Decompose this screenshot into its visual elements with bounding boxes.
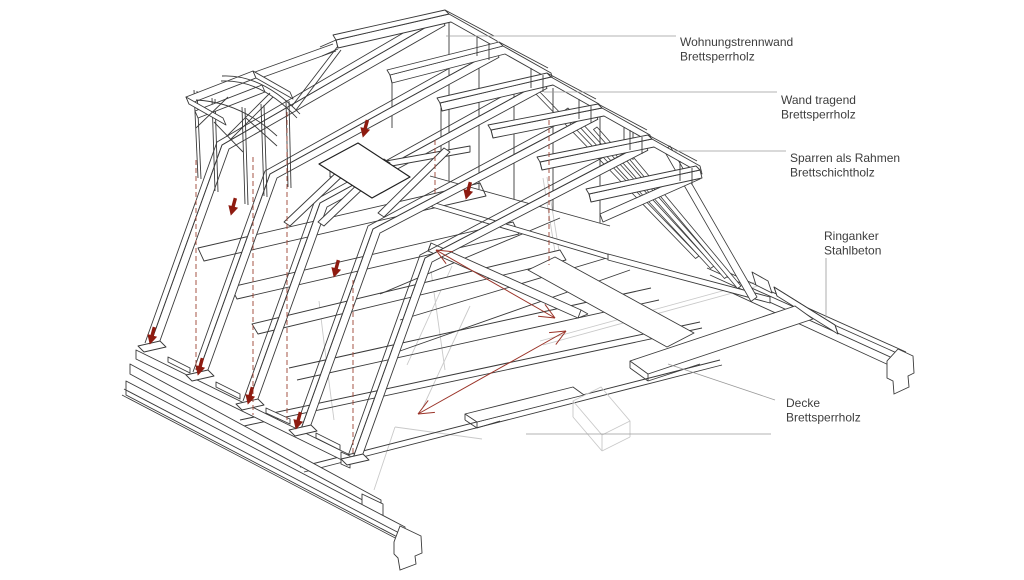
svg-text:Sparren als Rahmen: Sparren als Rahmen (790, 151, 900, 165)
svg-text:Wand tragend: Wand tragend (781, 93, 856, 107)
svg-text:Stahlbeton: Stahlbeton (824, 244, 881, 258)
svg-text:Decke: Decke (786, 396, 820, 410)
svg-text:Wohnungstrennwand: Wohnungstrennwand (680, 35, 793, 49)
svg-text:Brettsperrholz: Brettsperrholz (781, 108, 856, 122)
svg-text:Brettschichtholz: Brettschichtholz (790, 166, 875, 180)
svg-text:Brettsperrholz: Brettsperrholz (680, 50, 755, 64)
svg-text:Ringanker: Ringanker (824, 229, 879, 243)
svg-text:Brettsperrholz: Brettsperrholz (786, 411, 861, 425)
